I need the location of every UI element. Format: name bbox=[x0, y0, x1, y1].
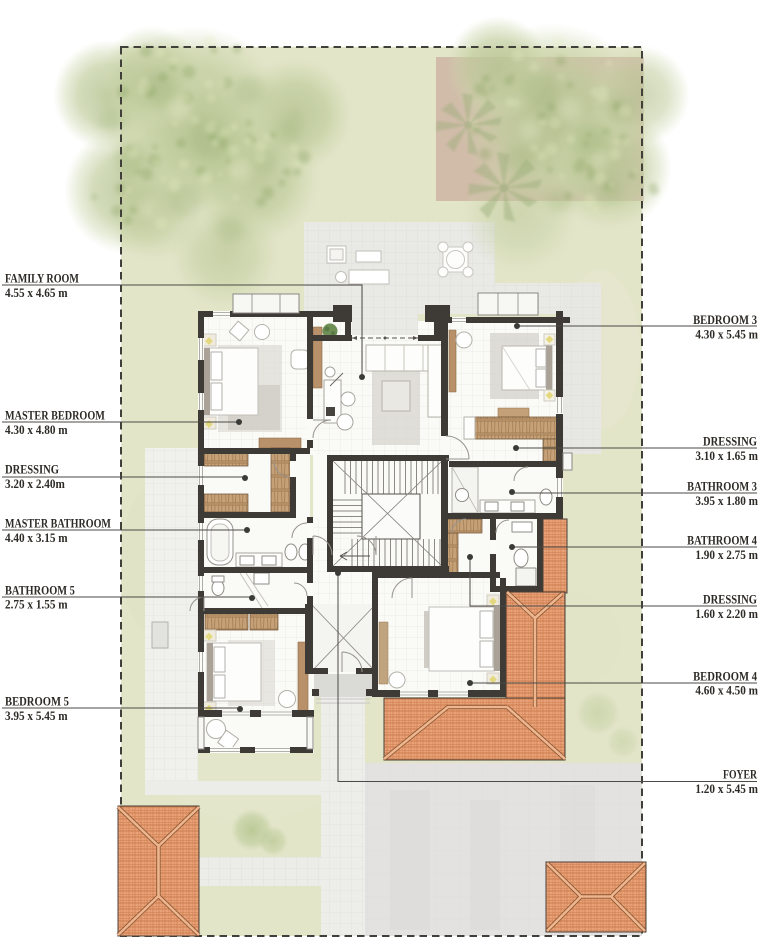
svg-text:3.20 x 2.40m: 3.20 x 2.40m bbox=[5, 476, 65, 491]
svg-text:1.90 x 2.75 m: 1.90 x 2.75 m bbox=[695, 547, 758, 562]
svg-text:2.75 x 1.55 m: 2.75 x 1.55 m bbox=[5, 597, 68, 612]
svg-text:BATHROOM 3: BATHROOM 3 bbox=[687, 481, 757, 494]
svg-text:FAMILY ROOM: FAMILY ROOM bbox=[5, 273, 79, 286]
svg-text:1.60 x 2.20 m: 1.60 x 2.20 m bbox=[695, 606, 758, 621]
svg-text:3.10 x 1.65 m: 3.10 x 1.65 m bbox=[695, 448, 758, 463]
svg-text:1.20 x 5.45 m: 1.20 x 5.45 m bbox=[695, 781, 758, 796]
svg-text:4.40 x 3.15 m: 4.40 x 3.15 m bbox=[5, 530, 68, 545]
svg-text:4.30 x 4.80 m: 4.30 x 4.80 m bbox=[5, 422, 68, 437]
svg-text:DRESSING: DRESSING bbox=[5, 464, 59, 477]
svg-text:BEDROOM 3: BEDROOM 3 bbox=[693, 314, 757, 327]
svg-text:4.30 x 5.45 m: 4.30 x 5.45 m bbox=[695, 327, 758, 342]
svg-text:3.95 x 1.80 m: 3.95 x 1.80 m bbox=[695, 493, 758, 508]
svg-text:BEDROOM 5: BEDROOM 5 bbox=[5, 696, 69, 709]
svg-text:4.55 x 4.65 m: 4.55 x 4.65 m bbox=[5, 285, 68, 300]
svg-text:MASTER BATHROOM: MASTER BATHROOM bbox=[5, 518, 111, 531]
svg-text:MASTER BEDROOM: MASTER BEDROOM bbox=[5, 410, 105, 423]
svg-text:BATHROOM 4: BATHROOM 4 bbox=[687, 535, 757, 548]
svg-text:FOYER: FOYER bbox=[723, 768, 758, 781]
svg-text:3.95 x 5.45 m: 3.95 x 5.45 m bbox=[5, 708, 68, 723]
svg-text:DRESSING: DRESSING bbox=[703, 594, 757, 607]
svg-text:DRESSING: DRESSING bbox=[703, 436, 757, 449]
svg-text:4.60 x 4.50 m: 4.60 x 4.50 m bbox=[695, 683, 758, 698]
